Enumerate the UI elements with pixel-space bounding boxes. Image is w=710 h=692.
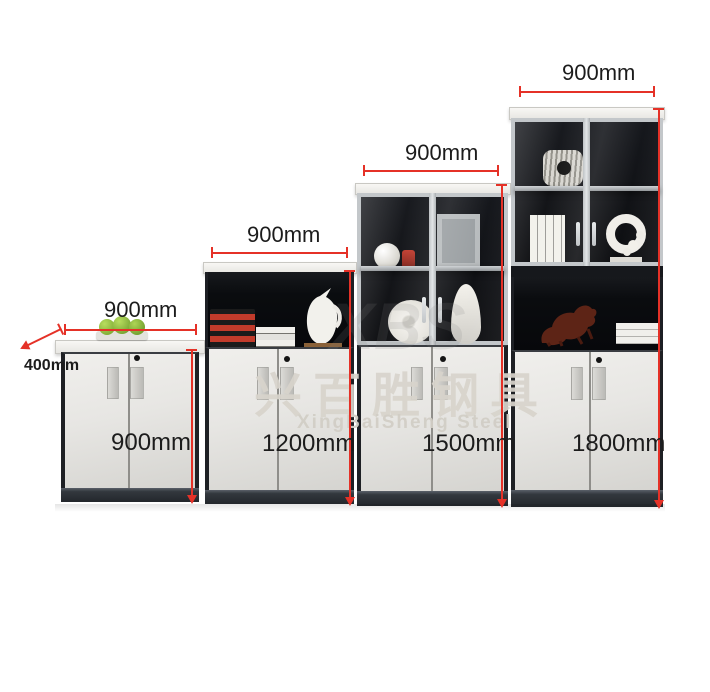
annotations-layer: 900mm 900mm 900mm 900mm 400mm 900mm 1200… xyxy=(0,0,710,692)
height-label-cabinet-1500: 1500mm xyxy=(422,430,515,458)
width-label-cabinet-1500: 900mm xyxy=(405,140,478,166)
height-label-cabinet-900: 900mm xyxy=(111,429,191,457)
height-line-cabinet-900 xyxy=(191,349,193,502)
width-label-cabinet-1800: 900mm xyxy=(562,60,635,86)
height-line-cabinet-1200 xyxy=(349,270,351,504)
product-dimension-image: XBS 兴百胜钢具 XingBaiSheng Steel 900mm 900mm… xyxy=(0,0,710,692)
width-line-cabinet-900 xyxy=(64,329,197,331)
width-line-cabinet-1500 xyxy=(363,170,499,172)
width-line-cabinet-1200 xyxy=(211,252,348,254)
depth-label-cabinet-900: 400mm xyxy=(24,357,79,375)
width-line-cabinet-1800 xyxy=(519,91,655,93)
width-label-cabinet-900: 900mm xyxy=(104,297,177,323)
height-label-cabinet-1200: 1200mm xyxy=(262,430,355,458)
depth-line-cabinet-900 xyxy=(22,328,62,349)
width-label-cabinet-1200: 900mm xyxy=(247,222,320,248)
height-label-cabinet-1800: 1800mm xyxy=(572,430,665,458)
